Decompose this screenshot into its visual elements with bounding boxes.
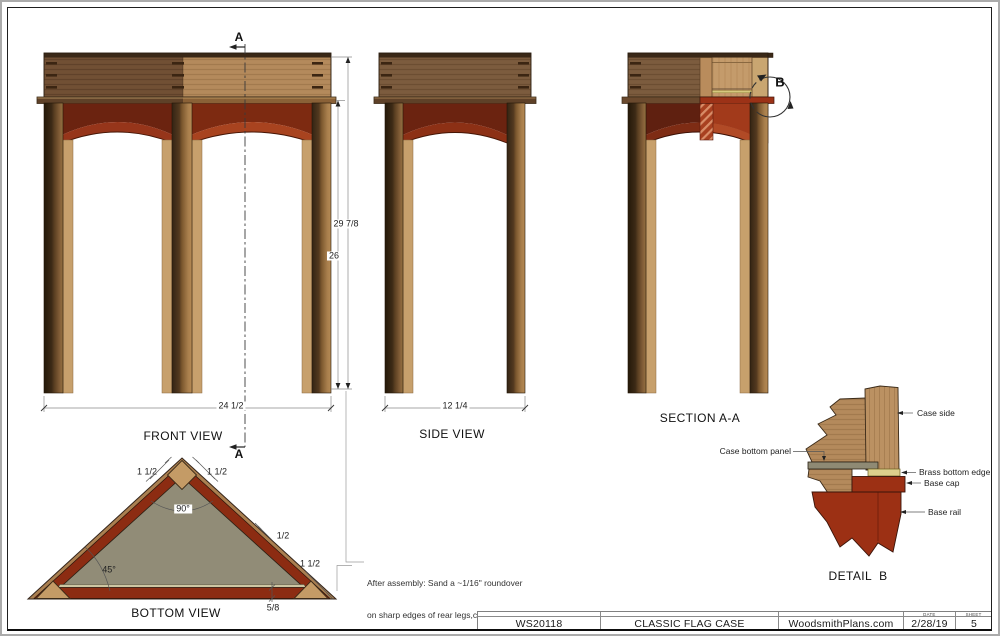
detail-b-label: DETAIL B <box>829 570 888 582</box>
dim-corner-angle: 45° <box>102 566 116 575</box>
bottom-view-label: BOTTOM VIEW <box>131 607 221 619</box>
dim-overall-height: 29 7/8 <box>331 220 360 229</box>
dim-leg-height: 26 <box>327 252 341 261</box>
dim-side-width: 12 1/4 <box>440 402 469 411</box>
dim-apex-left: 1 1/2 <box>137 468 157 477</box>
callout-brass-bottom-edge: Brass bottom edge <box>919 468 990 477</box>
dim-rail-height: 5/8 <box>267 604 280 613</box>
callout-base-cap: Base cap <box>924 479 959 488</box>
titleblock-spacer-3 <box>779 612 904 616</box>
detail-b-drawing <box>793 386 925 556</box>
section-marker-a-bottom: A <box>235 448 244 460</box>
callout-base-rail: Base rail <box>928 508 961 517</box>
titleblock-website: WoodsmithPlans.com <box>789 618 894 630</box>
dim-side-thickness: 1/2 <box>277 532 290 541</box>
section-aa-label: SECTION A-A <box>660 412 740 424</box>
dim-apex-right: 1 1/2 <box>207 468 227 477</box>
titleblock-date-label: DATE <box>923 612 936 616</box>
titleblock-sheet: 5 <box>971 618 977 630</box>
titleblock-plan-number: WS20118 <box>516 618 563 630</box>
title-block: DATE SHEET WS20118 CLASSIC FLAG CASE Woo… <box>477 611 992 631</box>
callout-case-bottom-panel: Case bottom panel <box>720 447 791 456</box>
titleblock-sheet-label: SHEET <box>966 612 982 616</box>
dim-front-width: 24 1/2 <box>216 402 245 411</box>
front-view-drawing <box>37 53 336 393</box>
titleblock-spacer-1 <box>478 612 601 616</box>
bottom-view-drawing <box>28 457 336 602</box>
titleblock-spacer-2 <box>601 612 779 616</box>
side-view-drawing <box>374 53 536 393</box>
dim-apex-angle: 90° <box>174 505 192 514</box>
detail-marker-b: B <box>775 76 784 89</box>
titleblock-title: CLASSIC FLAG CASE <box>634 618 744 630</box>
drawing-canvas <box>0 0 1000 636</box>
drawing-sheet: A A B 29 7/8 26 24 1/2 12 1/4 FRONT VIEW… <box>0 0 1000 636</box>
callout-case-side: Case side <box>917 409 955 418</box>
titleblock-date: 2/28/19 <box>911 618 947 630</box>
note-leader-lines <box>337 391 364 591</box>
front-view-label: FRONT VIEW <box>143 430 222 442</box>
dim-corner-leg: 1 1/2 <box>300 560 320 569</box>
assembly-note-line1: After assembly: Sand a ~1/16" roundover <box>367 578 543 589</box>
section-aa-drawing <box>622 53 794 393</box>
side-view-label: SIDE VIEW <box>419 428 485 440</box>
section-marker-a-top: A <box>235 31 244 43</box>
